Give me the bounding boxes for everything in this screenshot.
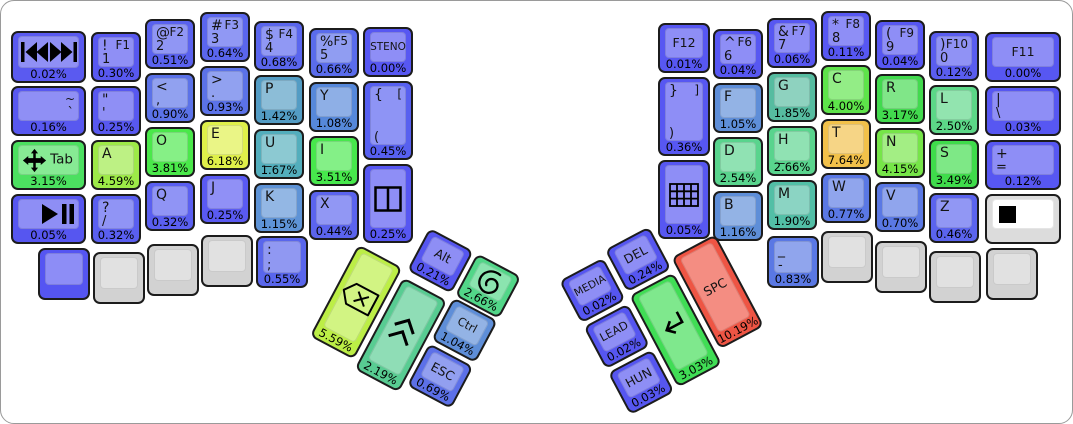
key-media-play-pause[interactable]: 0.05%	[11, 194, 86, 244]
usage-percentage: 0.70%	[877, 217, 923, 230]
key-s[interactable]: S3.49%	[929, 139, 979, 189]
keycap-top	[154, 249, 192, 281]
key-legend-bl: /	[102, 215, 106, 228]
keycap-top: &F77	[774, 23, 810, 53]
key-legend-bl: 5	[320, 49, 328, 62]
key-blank-gray-l1[interactable]	[93, 252, 145, 304]
keycap-top	[208, 240, 246, 272]
usage-percentage: 1.15%	[256, 218, 302, 231]
usage-percentage: 0.00%	[365, 62, 411, 75]
key-legend-tl: L	[940, 92, 948, 106]
key-legend-tl: )	[940, 38, 945, 52]
usage-percentage: 0.04%	[715, 64, 761, 77]
key-legend-tl: _	[778, 243, 785, 257]
keycap-top: H_	[774, 131, 810, 161]
key-b[interactable]: B1.16%	[713, 191, 763, 241]
usage-percentage: 0.51%	[147, 54, 193, 67]
prev-next-track-icon	[18, 36, 79, 68]
black-square-icon	[992, 199, 1054, 229]
key-legend-tr: [	[397, 88, 402, 100]
key-media-prev-next[interactable]: 0.02%	[11, 31, 86, 83]
key-legend-bl: -	[778, 259, 783, 272]
keycap-top: Y	[316, 87, 352, 117]
key-l[interactable]: L2.50%	[929, 85, 979, 135]
keycap-top: +=	[992, 145, 1054, 175]
usage-percentage: 1.67%	[256, 164, 302, 177]
usage-percentage: 0.32%	[93, 229, 139, 242]
key-x[interactable]: X0.44%	[309, 190, 359, 240]
key-legend-tl: I	[320, 143, 324, 157]
key-legend-tl: @	[156, 26, 170, 40]
key-6[interactable]: ^F660.04%	[713, 29, 763, 79]
key-legend-bl: 7	[778, 39, 786, 52]
keycap-top: T	[828, 124, 864, 154]
key-legend-tl: B	[724, 198, 734, 212]
key-legend-br: `	[68, 107, 75, 120]
key-legend-tl: T	[832, 126, 841, 140]
key-m[interactable]: M1.90%	[767, 180, 817, 230]
usage-percentage: 4.59%	[93, 175, 139, 188]
usage-percentage: 0.64%	[202, 47, 248, 60]
usage-percentage: 0.03%	[987, 121, 1059, 134]
key-legend-bl: 8	[832, 32, 840, 45]
move-icon	[18, 145, 79, 175]
key-7[interactable]: &F770.06%	[767, 18, 817, 68]
keycap-top: >.	[207, 71, 243, 101]
keycap-top: V	[882, 187, 918, 217]
keycap-top: "'	[98, 91, 134, 121]
usage-percentage: 0.90%	[147, 108, 193, 121]
usage-percentage: 0.01%	[660, 58, 708, 71]
keycap-top: N	[882, 133, 918, 163]
key-bracket-open[interactable]: {[(0.45%	[363, 81, 413, 160]
key-legend-tl: *	[832, 18, 839, 32]
keycap-top	[100, 257, 138, 289]
keycap-top: J	[207, 179, 243, 209]
usage-percentage: 0.55%	[258, 273, 306, 286]
key-legend-tr: F1	[115, 39, 130, 51]
usage-percentage: 0.11%	[823, 46, 869, 59]
keycap-top	[370, 169, 406, 228]
usage-percentage: 0.44%	[311, 225, 357, 238]
key-tab[interactable]: Tab3.15%	[11, 140, 86, 190]
key-blank-left[interactable]	[38, 248, 90, 300]
usage-percentage: 0.16%	[13, 121, 84, 134]
keycap-top: @F22	[152, 24, 188, 54]
usage-percentage: 0.00%	[987, 67, 1059, 80]
key-legend-tl: A	[102, 147, 112, 161]
usage-percentage: 1.05%	[715, 118, 761, 131]
usage-percentage: 0.25%	[93, 121, 139, 134]
usage-percentage: 0.83%	[769, 273, 817, 286]
key-legend-tr: F10	[946, 38, 968, 50]
usage-percentage: 4.00%	[823, 100, 869, 113]
key-legend-bl: 6	[724, 50, 732, 63]
key-q[interactable]: Q0.32%	[145, 181, 195, 231]
key-legend-tl: H	[778, 133, 789, 147]
key-0[interactable]: )F1000.12%	[929, 31, 979, 81]
key-legend-tl: #	[211, 19, 223, 33]
keycap-top: E	[207, 125, 243, 155]
key-legend-tl: |	[996, 93, 1001, 107]
keycap-top: {[(	[370, 86, 406, 145]
key-legend-tl: S	[940, 146, 949, 160]
key-t[interactable]: T7.64%	[821, 119, 871, 169]
key-legend-bl: .	[211, 87, 215, 100]
keycap-top: )F100	[936, 36, 972, 66]
key-underscore-dash[interactable]: _-0.83%	[767, 236, 819, 288]
key-legend-tl: >	[211, 73, 223, 87]
key-quote[interactable]: "'0.25%	[91, 86, 141, 136]
usage-percentage: 0.12%	[931, 66, 977, 79]
key-legend-tl: ^	[724, 36, 736, 50]
key-a[interactable]: A4.59%	[91, 140, 141, 190]
usage-percentage: 2.54%	[715, 172, 761, 185]
key-legend-tl: C	[832, 72, 842, 86]
key-legend-tl: U	[265, 136, 275, 150]
key-3[interactable]: #F330.64%	[200, 12, 250, 62]
keycap-top: F11	[992, 37, 1054, 67]
usage-percentage: 1.16%	[715, 226, 761, 239]
key-blank-gray-l3[interactable]	[201, 235, 253, 287]
key-legend-tl: G	[778, 79, 789, 93]
key-legend-bl: =	[996, 161, 1007, 174]
key-slash[interactable]: ?/0.32%	[91, 194, 141, 244]
keycap-top: Tab	[18, 145, 79, 175]
keycap-top: A	[98, 145, 134, 175]
keycap-top: ?/	[98, 199, 134, 229]
key-legend-bl: )	[669, 127, 674, 140]
key-legend-tl: N	[886, 135, 896, 149]
usage-percentage: 1.90%	[769, 215, 815, 228]
keycap-top	[18, 36, 79, 68]
keycap-top: F	[720, 88, 756, 118]
play-pause-icon	[18, 199, 79, 229]
keycap-top: }])	[665, 82, 703, 141]
key-bracket-close[interactable]: }])0.36%	[658, 77, 710, 156]
usage-percentage: 0.32%	[147, 216, 193, 229]
key-legend-swatch[interactable]	[985, 194, 1061, 244]
usage-percentage: 0.05%	[13, 229, 84, 242]
key-legend-tl: E	[211, 127, 220, 141]
key-steno[interactable]: STENO0.00%	[363, 27, 413, 77]
keycap-top: P	[261, 80, 297, 110]
key-e[interactable]: E6.18%	[200, 120, 250, 170]
key-blank-gray-r2[interactable]	[875, 241, 927, 293]
key-legend-tr: F8	[845, 18, 860, 30]
key-legend-bl: 0	[940, 52, 948, 65]
usage-percentage: 0.02%	[13, 68, 84, 81]
keycap-top	[993, 253, 1031, 285]
keycap-top: D	[720, 142, 756, 172]
usage-percentage: 2.66%	[769, 161, 815, 174]
key-period[interactable]: >.0.93%	[200, 66, 250, 116]
keycap-top: ^F66	[720, 34, 756, 64]
key-legend-tl: K	[265, 190, 274, 204]
key-legend-bl: 9	[886, 41, 894, 54]
key-i[interactable]: I3.51%	[309, 136, 359, 186]
usage-percentage: 6.18%	[202, 155, 248, 168]
usage-percentage: 7.64%	[823, 154, 869, 167]
key-legend-tr: F9	[899, 27, 914, 39]
key-legend-tl: }	[669, 84, 678, 98]
key-5[interactable]: %F550.66%	[309, 28, 359, 78]
keycap-top: F12	[665, 28, 703, 58]
key-legend-tr: F4	[278, 28, 293, 40]
key-plus-equals[interactable]: +=0.12%	[985, 140, 1061, 190]
key-4[interactable]: $F440.68%	[254, 21, 304, 71]
usage-percentage: 1.42%	[256, 110, 302, 123]
key-legend-tl: ?	[102, 201, 109, 215]
keycap-top: :;	[263, 241, 301, 273]
key-z[interactable]: Z0.46%	[929, 193, 979, 243]
keycap-top	[665, 165, 703, 224]
keycap-top: <,	[152, 78, 188, 108]
key-f11[interactable]: F110.00%	[985, 32, 1061, 82]
key-legend-bl: 4	[265, 42, 273, 55]
key-legend-tl: :	[267, 243, 272, 257]
usage-percentage: 0.77%	[823, 208, 869, 221]
key-w[interactable]: W0.77%	[821, 173, 871, 223]
key-legend-tl: D	[724, 144, 735, 158]
usage-percentage: 0.05%	[660, 224, 708, 237]
key-9[interactable]: (F990.04%	[875, 20, 925, 70]
key-legend-tr: F5	[333, 35, 348, 47]
key-grave-tilde[interactable]: ~`0.16%	[11, 86, 86, 136]
usage-percentage: 3.49%	[931, 174, 977, 187]
key-blank-gray-r1[interactable]	[821, 231, 873, 283]
key-legend-tl: Q	[156, 188, 167, 202]
keyboard-usage-heatmap: 0.02%!F110.30%@F220.51%#F330.64%$F440.68…	[0, 0, 1073, 424]
keycap-top: (F99	[882, 25, 918, 55]
key-y[interactable]: Y1.08%	[309, 82, 359, 132]
key-legend-bl: (	[374, 131, 379, 144]
key-legend-tl: {	[374, 88, 383, 102]
key-j[interactable]: J0.25%	[200, 174, 250, 224]
key-legend-tl: M	[778, 187, 790, 201]
usage-percentage: 0.25%	[202, 209, 248, 222]
usage-percentage: 4.15%	[877, 163, 923, 176]
key-legend-tr: F2	[169, 26, 184, 38]
key-p[interactable]: P1.42%	[254, 75, 304, 125]
keycap-top: U_	[261, 134, 297, 164]
keycap-top: $F44	[261, 26, 297, 56]
keycap-top: ~`	[18, 91, 79, 121]
key-legend-tr: F7	[791, 25, 806, 37]
key-2[interactable]: @F220.51%	[145, 19, 195, 69]
key-legend-tl: +	[996, 147, 1008, 161]
keycap-top: |\	[992, 91, 1054, 121]
key-legend-tr: ~	[65, 93, 75, 105]
key-comma[interactable]: <,0.90%	[145, 73, 195, 123]
key-r[interactable]: R3.17%	[875, 74, 925, 124]
key-o[interactable]: O3.81%	[145, 127, 195, 177]
key-label: F11	[992, 37, 1054, 67]
key-legend-tl: X	[320, 197, 330, 211]
key-f[interactable]: F1.05%	[713, 83, 763, 133]
key-legend-tl: W	[832, 180, 846, 194]
key-blank-gray-r4[interactable]	[986, 248, 1038, 300]
usage-percentage: 0.68%	[256, 56, 302, 69]
key-legend-tl: O	[156, 134, 167, 148]
keycap-top: _-	[774, 241, 812, 273]
usage-percentage: 0.06%	[769, 53, 815, 66]
key-u[interactable]: U_1.67%	[254, 129, 304, 179]
keycap-top	[45, 253, 83, 285]
key-label: F12	[665, 28, 703, 58]
usage-percentage: 0.46%	[931, 228, 977, 241]
key-legend-tl: F	[724, 90, 732, 104]
key-pipe-backslash[interactable]: |\0.03%	[985, 86, 1061, 136]
usage-percentage: 3.81%	[147, 162, 193, 175]
keycap-top	[828, 236, 866, 268]
key-legend-tr: F3	[224, 19, 239, 31]
usage-percentage: 1.85%	[769, 107, 815, 120]
keycap-top: X	[316, 195, 352, 225]
key-legend-bl: '	[102, 107, 106, 120]
key-legend-tr: ]	[694, 84, 699, 96]
keycap-top: %F55	[316, 33, 352, 63]
keycap-top: K	[261, 188, 297, 218]
usage-percentage: 0.25%	[365, 228, 411, 241]
key-k[interactable]: K1.15%	[254, 183, 304, 233]
key-legend-tl: Z	[940, 200, 950, 214]
keycap-top: L	[936, 90, 972, 120]
keycap-top: #F33	[207, 17, 243, 47]
key-c[interactable]: C4.00%	[821, 65, 871, 115]
key-legend-tl: R	[886, 81, 896, 95]
key-legend-tr: F6	[737, 36, 752, 48]
key-legend-bl: 1	[102, 53, 110, 66]
keycap-top: O	[152, 132, 188, 162]
usage-percentage: 3.17%	[877, 109, 923, 122]
usage-percentage: 0.66%	[311, 63, 357, 76]
key-blank-gray-r3[interactable]	[929, 251, 981, 303]
key-legend-tl: Y	[320, 89, 329, 103]
key-legend-bl: ,	[156, 94, 160, 107]
usage-percentage: 0.04%	[877, 55, 923, 68]
keycap-top: W	[828, 178, 864, 208]
key-g[interactable]: G1.85%	[767, 72, 817, 122]
key-n[interactable]: N4.15%	[875, 128, 925, 178]
usage-percentage: 0.36%	[660, 141, 708, 154]
key-legend-tl: (	[886, 27, 891, 41]
keycap-top: *F88	[828, 16, 864, 46]
key-legend-tl: P	[265, 82, 273, 96]
usage-percentage: 0.12%	[987, 175, 1059, 188]
keycap-top: B	[720, 196, 756, 226]
key-keypad[interactable]: 0.05%	[658, 160, 710, 239]
split-window-icon	[370, 169, 406, 228]
keypad-icon	[665, 165, 703, 224]
key-label: STENO	[370, 32, 406, 62]
key-blank-gray-l2[interactable]	[147, 244, 199, 296]
key-legend-tl: <	[156, 80, 168, 94]
usage-percentage: 0.45%	[365, 145, 411, 158]
keycap-top: Z	[936, 198, 972, 228]
keycap-top: R	[882, 79, 918, 109]
key-8[interactable]: *F880.11%	[821, 11, 871, 61]
usage-percentage: 0.30%	[93, 67, 139, 80]
key-legend-tl: V	[886, 189, 896, 203]
keycap-top: C	[828, 70, 864, 100]
keycap-top	[18, 199, 79, 229]
keycap-top	[992, 199, 1054, 229]
key-legend-tl: "	[102, 93, 108, 107]
keycap-top: G	[774, 77, 810, 107]
key-semicolon[interactable]: :;0.55%	[256, 236, 308, 288]
key-f12[interactable]: F120.01%	[658, 23, 710, 73]
usage-percentage: 3.15%	[13, 175, 84, 188]
key-legend-bl: \	[996, 107, 1000, 120]
key-d[interactable]: D2.54%	[713, 137, 763, 187]
keycap-top	[936, 256, 974, 288]
key-legend-tl: !	[102, 39, 108, 53]
key-legend-tl: $	[265, 28, 274, 42]
keycap-top: STENO	[370, 32, 406, 62]
key-v[interactable]: V0.70%	[875, 182, 925, 232]
keycap-top: I	[316, 141, 352, 171]
keycap-top	[882, 246, 920, 278]
keycap-top: !F11	[98, 37, 134, 67]
key-h[interactable]: H_2.66%	[767, 126, 817, 176]
key-legend-tl: %	[320, 35, 333, 49]
usage-percentage: 1.08%	[311, 117, 357, 130]
key-legend-tl: J	[211, 181, 215, 195]
usage-percentage: 2.50%	[931, 120, 977, 133]
key-1[interactable]: !F110.30%	[91, 32, 141, 82]
key-legend-bl: ;	[267, 259, 271, 272]
key-legend-tl: &	[778, 25, 789, 39]
keycap-top: Q	[152, 186, 188, 216]
usage-percentage: 0.93%	[202, 101, 248, 114]
key-split-window[interactable]: 0.25%	[363, 164, 413, 243]
keycap-top: S	[936, 144, 972, 174]
key-legend-bl: 3	[211, 33, 219, 46]
key-legend-bl: 2	[156, 40, 164, 53]
keycap-top: M	[774, 185, 810, 215]
usage-percentage: 3.51%	[311, 171, 357, 184]
